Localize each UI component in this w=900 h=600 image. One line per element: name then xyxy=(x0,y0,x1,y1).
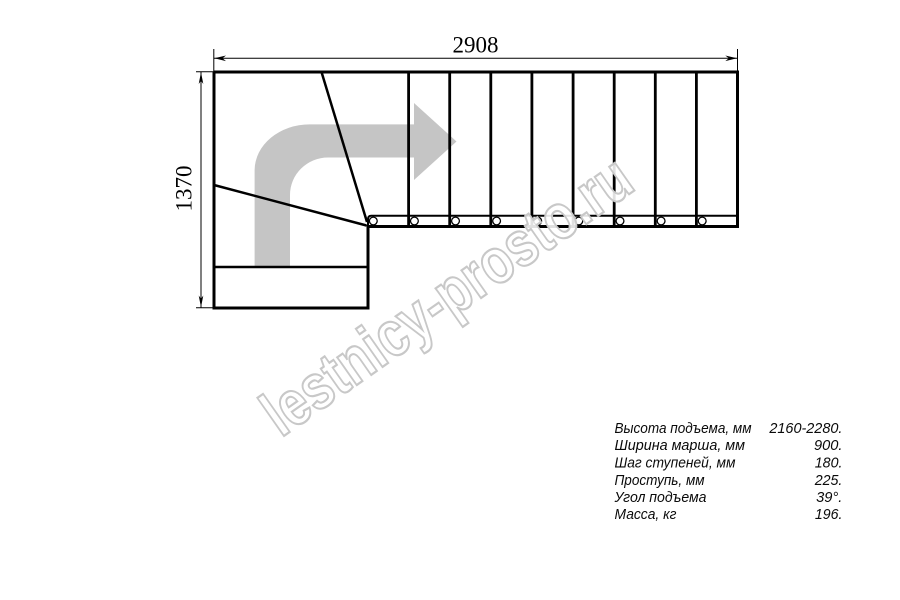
svg-text:225.: 225. xyxy=(814,472,843,489)
svg-text:Угол подъема: Угол подъема xyxy=(614,489,707,506)
svg-text:Ширина марша, мм: Ширина марша, мм xyxy=(615,437,746,454)
svg-text:2160-2280.: 2160-2280. xyxy=(768,420,842,437)
svg-text:1370: 1370 xyxy=(172,166,197,212)
svg-text:Масса, кг: Масса, кг xyxy=(615,506,678,523)
svg-text:2908: 2908 xyxy=(453,33,499,58)
svg-text:900.: 900. xyxy=(814,437,842,454)
svg-text:Шаг ступеней, мм: Шаг ступеней, мм xyxy=(615,454,736,471)
svg-text:Проступь, мм: Проступь, мм xyxy=(615,472,705,489)
svg-text:39°.: 39°. xyxy=(816,489,842,506)
svg-text:180.: 180. xyxy=(815,454,843,471)
svg-text:196.: 196. xyxy=(815,506,843,523)
svg-text:Высота подъема, мм: Высота подъема, мм xyxy=(615,420,752,437)
